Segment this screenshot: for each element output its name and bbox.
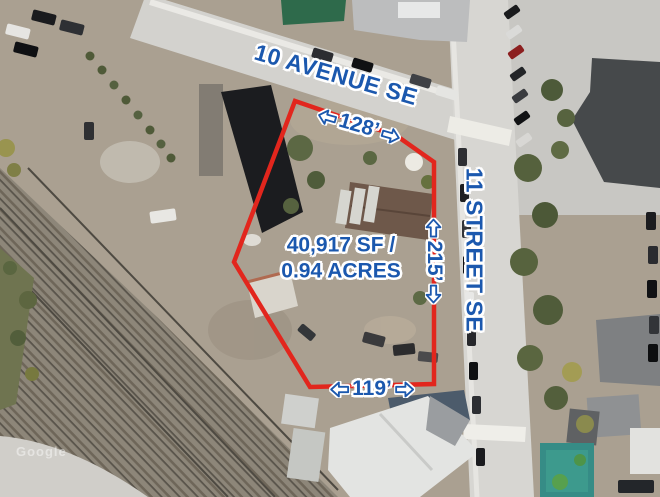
aerial-parcel-map: 10 AVENUE SE 11 STREET SE 40,917 SF / 0.… <box>0 0 660 497</box>
google-watermark: Google <box>16 444 67 459</box>
parcel-area-label: 40,917 SF / 0.94 ACRES <box>281 232 400 283</box>
area-line-1: 40,917 SF / <box>281 232 400 258</box>
dimension-label-bottom: 119’ <box>329 377 415 401</box>
arrow-right-icon <box>378 124 403 146</box>
dimension-label-right: 215’ <box>422 218 446 305</box>
arrow-left-icon <box>315 106 340 128</box>
arrow-right-icon <box>394 381 415 398</box>
arrow-left-icon <box>329 381 350 398</box>
arrow-down-icon <box>426 283 443 304</box>
area-line-2: 0.94 ACRES <box>281 258 400 284</box>
arrow-up-icon <box>426 218 443 239</box>
dimension-right-value: 215’ <box>422 241 446 282</box>
street-label-11-street-se: 11 STREET SE <box>461 168 488 333</box>
dimension-bottom-value: 119’ <box>352 377 392 401</box>
